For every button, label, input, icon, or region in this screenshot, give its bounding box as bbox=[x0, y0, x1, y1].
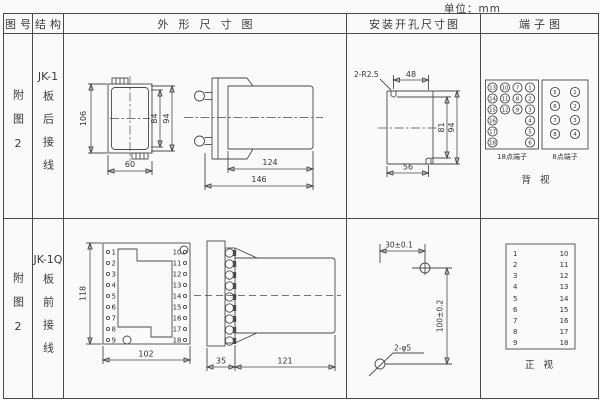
install-drawing-row1: 2-R2.5 48 81 94 56 bbox=[347, 34, 481, 219]
screw-terminal bbox=[195, 136, 205, 146]
pin-number: 11 bbox=[560, 261, 569, 269]
pin-number: 15 bbox=[173, 304, 182, 312]
outline-drawing-row1: 106 84 94 60 124 146 bbox=[64, 34, 347, 219]
pin-number: 7 bbox=[553, 118, 556, 124]
dim-label-102: 102 bbox=[138, 350, 153, 359]
fig-no-text: 附图2 bbox=[13, 272, 24, 346]
pin-number: 14 bbox=[560, 295, 569, 303]
pin-number: 1 bbox=[513, 250, 517, 258]
install-drawing-row2: 30±0.1 100±0.2 2-φ5 bbox=[347, 219, 481, 398]
pin-number: 4 bbox=[513, 283, 518, 291]
dim-label-118: 118 bbox=[79, 286, 88, 301]
pin-number: 1 bbox=[573, 90, 576, 96]
model-name: JK-1Q bbox=[34, 253, 63, 266]
dim-label-81: 81 bbox=[437, 122, 446, 132]
dim-label-84: 84 bbox=[150, 113, 159, 123]
pin-number: 17 bbox=[489, 129, 496, 135]
pin-number: 12 bbox=[502, 107, 509, 113]
relay-footprint bbox=[118, 249, 172, 337]
header-install-label: 安装开孔尺寸图 bbox=[369, 16, 460, 32]
header-outline-label: 外形尺寸图 bbox=[158, 16, 263, 32]
terminal-box-8 bbox=[542, 80, 588, 149]
pin-number: 7 bbox=[112, 315, 116, 323]
pin-number: 6 bbox=[528, 140, 532, 146]
dim-label-94: 94 bbox=[162, 113, 171, 123]
pin-number: 8 bbox=[513, 328, 517, 336]
header-terminal-label: 端子图 bbox=[519, 16, 564, 32]
screw-column bbox=[225, 249, 236, 345]
dim-label-30: 30±0.1 bbox=[385, 241, 413, 250]
pin-number: 8 bbox=[516, 96, 520, 102]
pin-number: 12 bbox=[173, 271, 182, 279]
dim-label-94: 94 bbox=[447, 122, 456, 132]
model-name: JK-1 bbox=[38, 70, 58, 83]
view-label: 正 视 bbox=[525, 359, 556, 371]
header-terminal: 端子图 bbox=[481, 14, 598, 34]
screw-terminal bbox=[195, 91, 205, 101]
pin-number: 18 bbox=[173, 337, 182, 345]
dim-label-121: 121 bbox=[277, 357, 292, 366]
pin-number: 6 bbox=[553, 104, 557, 110]
pin-number: 2 bbox=[528, 96, 531, 102]
pin-number: 5 bbox=[528, 129, 531, 135]
row2-fig-no: 附图2 bbox=[4, 219, 33, 398]
dim-label-124: 124 bbox=[262, 158, 277, 167]
header-install: 安装开孔尺寸图 bbox=[347, 14, 481, 34]
wiring-type: 板后接线 bbox=[43, 90, 54, 182]
pin-number: 18 bbox=[560, 339, 569, 347]
dim-label-35: 35 bbox=[216, 357, 226, 366]
row1-terminal-cell: 13 10 7 1 14 11 8 2 15 12 9 3 16 4 17 5 … bbox=[481, 34, 598, 219]
mount-hole bbox=[375, 359, 385, 369]
pin-number: 4 bbox=[573, 132, 577, 138]
pin-number: 6 bbox=[112, 304, 117, 312]
hole-label: 2-φ5 bbox=[394, 344, 411, 353]
pin-number: 9 bbox=[516, 107, 520, 113]
row2-install-cell: 30±0.1 100±0.2 2-φ5 bbox=[347, 219, 481, 398]
pin-number: 10 bbox=[173, 249, 182, 257]
pin-number: 3 bbox=[528, 107, 531, 113]
mount-panel bbox=[207, 241, 225, 346]
dim-label-48: 48 bbox=[406, 70, 416, 79]
mount-hole bbox=[123, 336, 131, 344]
pin-number: 9 bbox=[513, 339, 517, 347]
pin-number: 13 bbox=[173, 282, 182, 290]
pin-number: 8 bbox=[112, 326, 116, 334]
terminal-list-left: 1 2 3 4 5 6 7 8 9 bbox=[513, 250, 518, 347]
pin-number: 12 bbox=[560, 272, 569, 280]
row1-structure: JK-1 板后接线 bbox=[33, 34, 64, 219]
pin-number: 1 bbox=[528, 85, 531, 91]
pin-number: 14 bbox=[489, 96, 496, 102]
pin-number: 3 bbox=[573, 118, 576, 124]
pin-number: 7 bbox=[513, 317, 517, 325]
row2-terminal-cell: 1 2 3 4 5 6 7 8 9 10 11 12 13 14 15 16 1… bbox=[481, 219, 598, 398]
front-pins-right: 10 11 12 13 14 15 16 17 18 bbox=[173, 249, 187, 345]
row1-install-cell: 2-R2.5 48 81 94 56 bbox=[347, 34, 481, 219]
pin-number: 2 bbox=[573, 104, 576, 110]
header-structure: 结构 bbox=[33, 14, 64, 34]
pin-number: 5 bbox=[553, 90, 556, 96]
pin-number: 18 bbox=[489, 140, 496, 146]
top-slot bbox=[391, 91, 396, 97]
view-label: 背 视 bbox=[521, 174, 552, 186]
dim-label-56: 56 bbox=[403, 163, 413, 172]
pin-number: 17 bbox=[173, 326, 182, 334]
wiring-type: 板前接线 bbox=[43, 273, 54, 365]
pin-number: 13 bbox=[560, 283, 569, 291]
header-fig-no: 图号 bbox=[4, 14, 33, 34]
pin-number: 16 bbox=[173, 315, 182, 323]
fig-no-text: 附图2 bbox=[13, 89, 24, 163]
pin-number: 10 bbox=[560, 250, 569, 258]
pin-number: 16 bbox=[560, 317, 569, 325]
header-structure-label: 结构 bbox=[35, 16, 64, 32]
dim-label-60: 60 bbox=[125, 160, 135, 169]
row1-outline-cell: 106 84 94 60 124 146 bbox=[64, 34, 347, 219]
pin-number: 4 bbox=[528, 118, 532, 124]
pin-number: 3 bbox=[513, 272, 517, 280]
pin-number: 17 bbox=[560, 328, 569, 336]
pin-number: 3 bbox=[112, 271, 116, 279]
spec-table: 图号 结构 外形尺寸图 安装开孔尺寸图 端子图 附图2 JK-1 板后接线 bbox=[3, 13, 599, 399]
row2-outline-cell: 1 2 3 4 5 6 7 8 9 10 11 12 13 14 15 16 1… bbox=[64, 219, 347, 398]
header-fig-label: 图号 bbox=[5, 16, 33, 32]
radius-label: 2-R2.5 bbox=[354, 70, 379, 79]
pin-number: 16 bbox=[489, 118, 496, 124]
header-outline: 外形尺寸图 bbox=[64, 14, 347, 34]
pin-number: 4 bbox=[112, 282, 117, 290]
pin-number: 15 bbox=[489, 107, 496, 113]
row1-fig-no: 附图2 bbox=[4, 34, 33, 219]
pin-number: 11 bbox=[502, 96, 509, 102]
pin-number: 5 bbox=[513, 295, 517, 303]
pin-number: 2 bbox=[112, 260, 116, 268]
terminal-pins-18: 13 10 7 1 14 11 8 2 15 12 9 3 16 4 17 5 … bbox=[488, 83, 535, 147]
pin-number: 15 bbox=[560, 306, 569, 314]
pin-number: 8 bbox=[553, 132, 557, 138]
pin-number: 1 bbox=[112, 249, 116, 257]
pin-number: 9 bbox=[112, 337, 116, 345]
pin-number: 5 bbox=[112, 293, 116, 301]
pin-number: 14 bbox=[173, 293, 182, 301]
pin-number: 7 bbox=[516, 85, 519, 91]
dim-label-146: 146 bbox=[251, 175, 266, 184]
bottom-slot bbox=[426, 158, 431, 164]
dim-label-106: 106 bbox=[79, 111, 88, 126]
pin-number: 11 bbox=[173, 260, 182, 268]
label-18-point: 18点端子 bbox=[497, 152, 527, 161]
front-pins-left: 1 2 3 4 5 6 7 8 9 bbox=[106, 249, 116, 345]
label-8-point: 8点端子 bbox=[552, 152, 577, 161]
pin-number: 10 bbox=[502, 85, 509, 91]
dim-label-100: 100±0.2 bbox=[436, 300, 445, 333]
terminal-diagram-row1: 13 10 7 1 14 11 8 2 15 12 9 3 16 4 17 5 … bbox=[481, 34, 598, 219]
terminal-diagram-row2: 1 2 3 4 5 6 7 8 9 10 11 12 13 14 15 16 1… bbox=[481, 219, 598, 398]
terminal-list-right: 10 11 12 13 14 15 16 17 18 bbox=[560, 250, 569, 347]
pin-number: 13 bbox=[489, 85, 496, 91]
pin-number: 2 bbox=[513, 261, 517, 269]
row2-structure: JK-1Q 板前接线 bbox=[33, 219, 64, 398]
pin-number: 6 bbox=[513, 306, 518, 314]
outline-drawing-row2: 1 2 3 4 5 6 7 8 9 10 11 12 13 14 15 16 1… bbox=[64, 219, 347, 398]
terminal-pins-8: 5 1 6 2 7 3 8 4 bbox=[550, 87, 579, 138]
